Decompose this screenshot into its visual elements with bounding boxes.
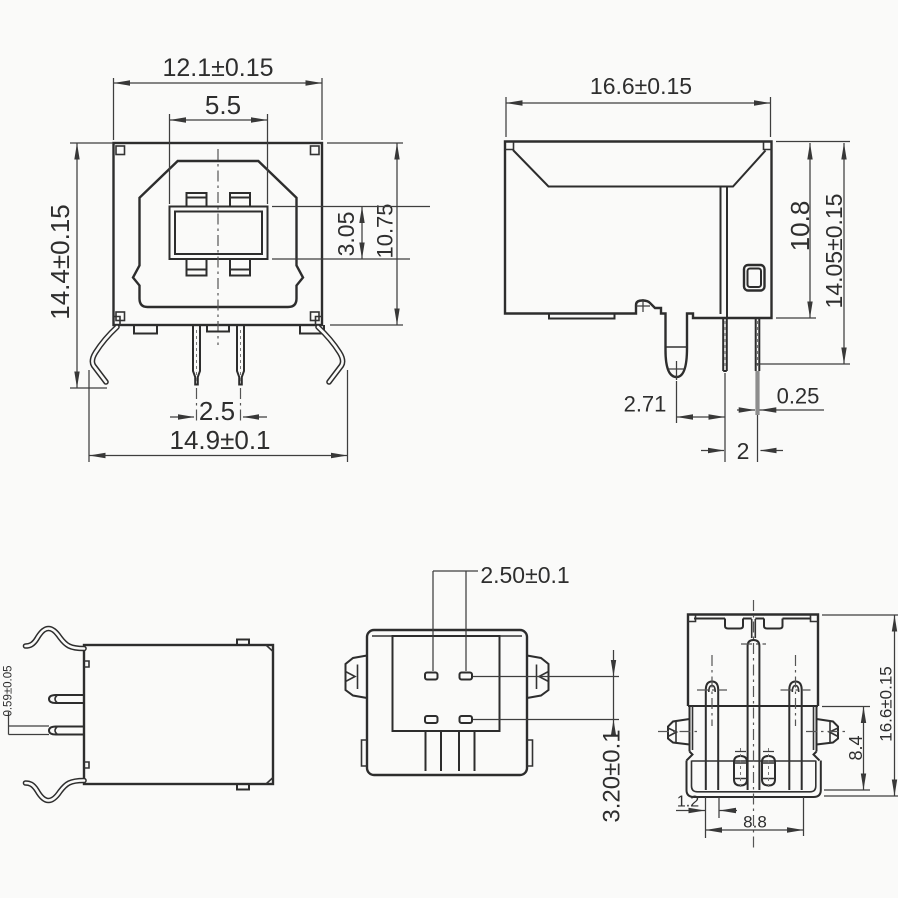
svg-text:2: 2: [737, 438, 750, 464]
svg-text:3.20±0.1: 3.20±0.1: [599, 729, 626, 822]
svg-text:2.5: 2.5: [199, 396, 235, 426]
svg-text:12.1±0.15: 12.1±0.15: [162, 54, 273, 82]
svg-text:1.2: 1.2: [677, 794, 699, 811]
svg-text:5.5: 5.5: [205, 90, 241, 120]
svg-text:0.59±0.05: 0.59±0.05: [3, 665, 15, 716]
svg-text:16.6±0.15: 16.6±0.15: [590, 73, 692, 99]
svg-text:14.9±0.1: 14.9±0.1: [169, 425, 270, 455]
svg-text:14.4±0.15: 14.4±0.15: [45, 204, 75, 319]
svg-text:0.25: 0.25: [777, 384, 820, 409]
svg-text:8.4: 8.4: [846, 735, 866, 760]
svg-text:2.50±0.1: 2.50±0.1: [480, 562, 569, 588]
svg-text:3.05: 3.05: [333, 212, 359, 257]
svg-text:10.8: 10.8: [785, 201, 815, 252]
svg-text:2.71: 2.71: [624, 392, 667, 417]
svg-text:10.75: 10.75: [373, 203, 398, 258]
svg-text:8.8: 8.8: [743, 813, 767, 832]
svg-text:16.6±0.15: 16.6±0.15: [877, 666, 896, 742]
svg-text:14.05±0.15: 14.05±0.15: [821, 194, 847, 309]
